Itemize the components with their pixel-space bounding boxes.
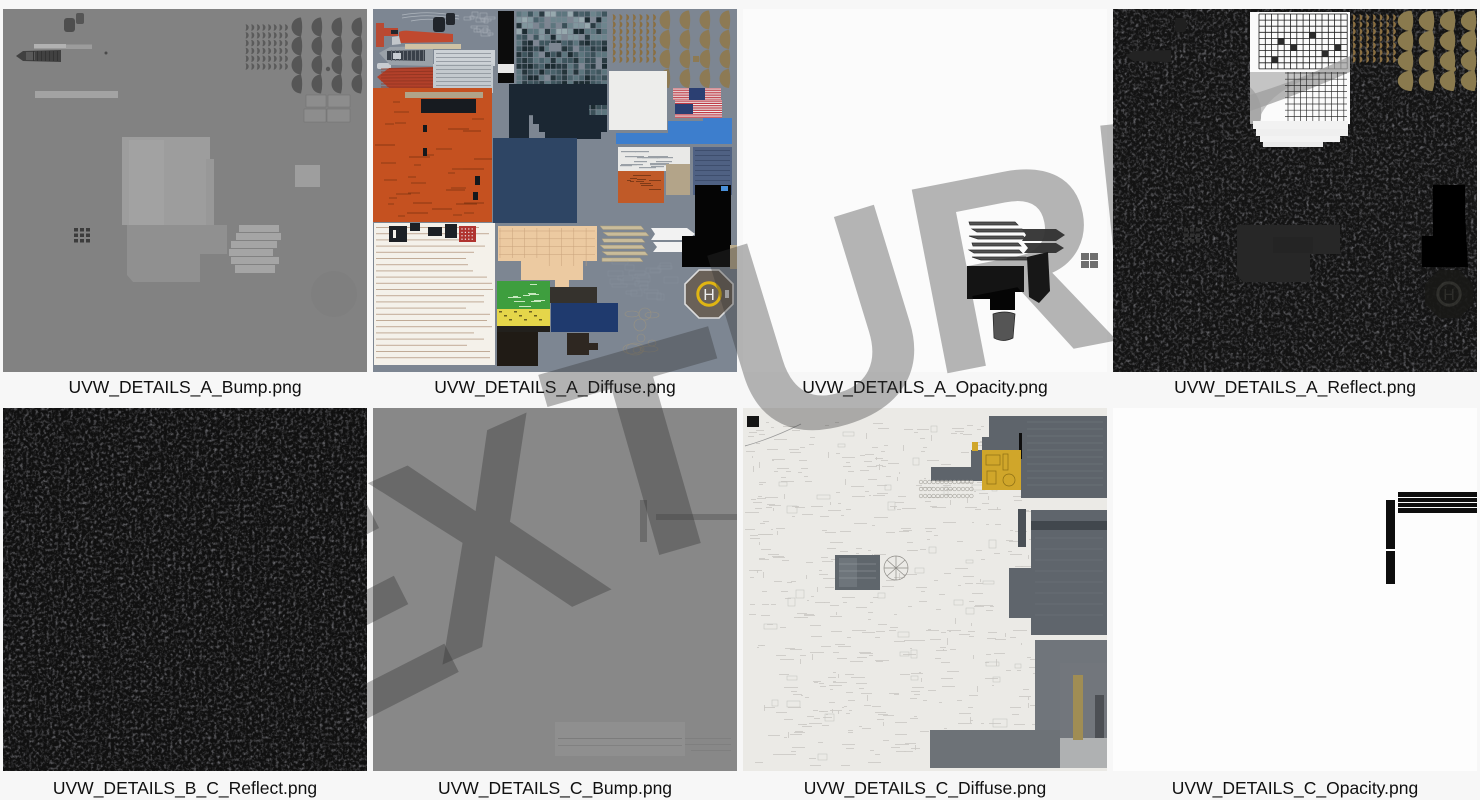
svg-text:H: H xyxy=(703,287,715,304)
svg-text:H: H xyxy=(1443,287,1455,304)
